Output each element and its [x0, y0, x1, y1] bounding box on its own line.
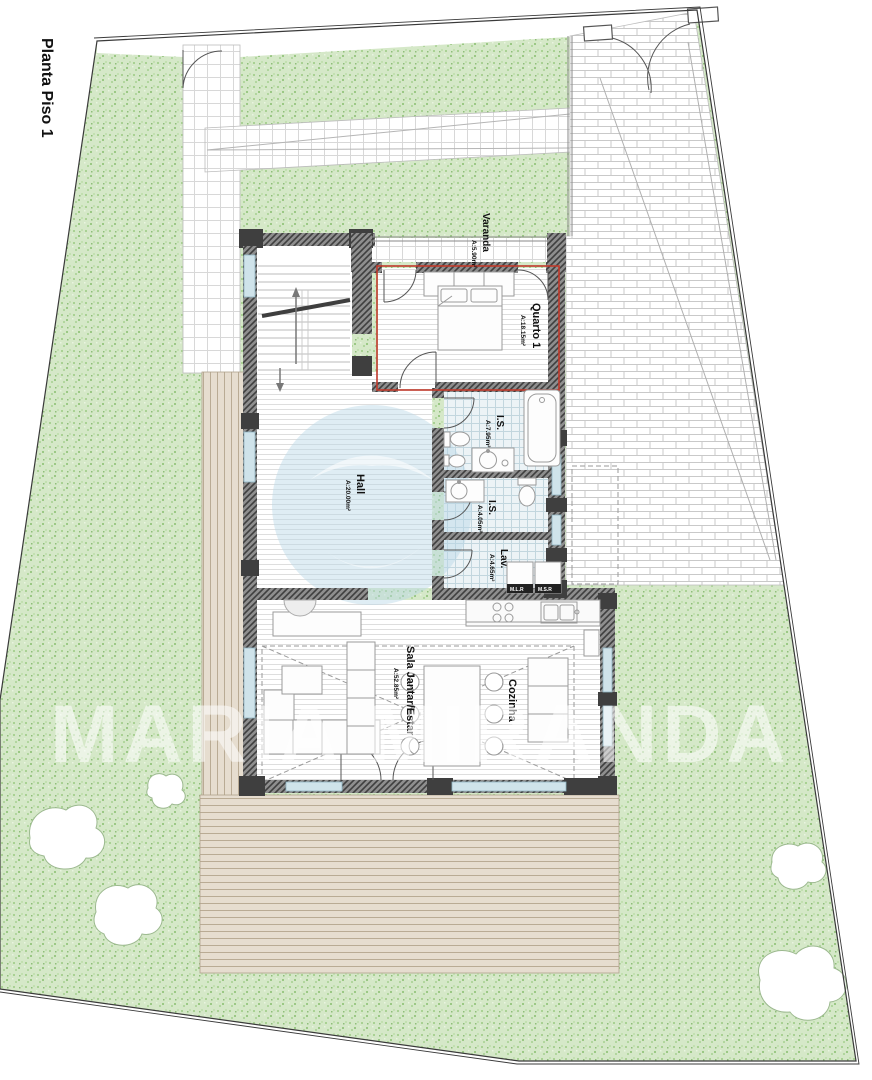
floor-plan-svg: Planta Piso 1 Varanda A:5.90m² Quarto 1 … — [0, 0, 872, 1080]
watermark-name: MARIA MIRANDA S — [50, 689, 872, 780]
window-cozinha-east — [603, 648, 612, 692]
room-label-is1: I.S. — [494, 415, 505, 430]
room-area-is1: A:7.95m² — [484, 420, 491, 448]
room-label-lav: Lav. — [498, 549, 509, 568]
floor-varanda — [372, 238, 547, 262]
kitchen-counter — [466, 600, 600, 626]
window-hall — [244, 432, 255, 482]
deck-south — [200, 795, 619, 973]
room-label-varanda: Varanda — [480, 213, 491, 252]
page-title: Planta Piso 1 — [38, 38, 55, 138]
room-label-hall: Hall — [354, 474, 366, 494]
washbasin-is1 — [472, 448, 514, 472]
appliance-label-msr: M.S.R — [538, 587, 552, 593]
window-stairwell — [244, 255, 255, 297]
toilet-is2 — [518, 478, 536, 506]
window-sala-south — [286, 782, 342, 791]
room-area-lav: A:4.65m² — [488, 554, 495, 582]
fridge — [584, 630, 599, 656]
window-cozinha-south — [452, 782, 566, 791]
driveway — [566, 12, 784, 585]
room-area-varanda: A:5.90m² — [470, 240, 477, 268]
gate-post-right — [688, 7, 719, 23]
bathtub — [524, 390, 560, 466]
room-area-is2: A:4.05m² — [476, 505, 483, 533]
watermark-fragment: 7/AM — [800, 656, 860, 684]
west-path — [183, 45, 240, 373]
room-area-quarto1: A:18.15m² — [519, 315, 526, 347]
room-area-hall: A:20.00m² — [344, 480, 351, 512]
floor-plan-page: Planta Piso 1 Varanda A:5.90m² Quarto 1 … — [0, 0, 872, 1080]
appliance-label-mlr: M.L.R — [510, 587, 524, 593]
bed — [438, 286, 502, 350]
washbasin-is2 — [446, 480, 484, 502]
gate-post-left — [584, 25, 613, 41]
room-label-is2: I.S. — [486, 500, 497, 515]
window-is2 — [552, 515, 561, 545]
room-label-quarto1: Quarto 1 — [530, 303, 542, 348]
tv-unit — [273, 612, 361, 636]
bidet-is1 — [444, 455, 465, 467]
toilet-is1 — [444, 432, 470, 447]
